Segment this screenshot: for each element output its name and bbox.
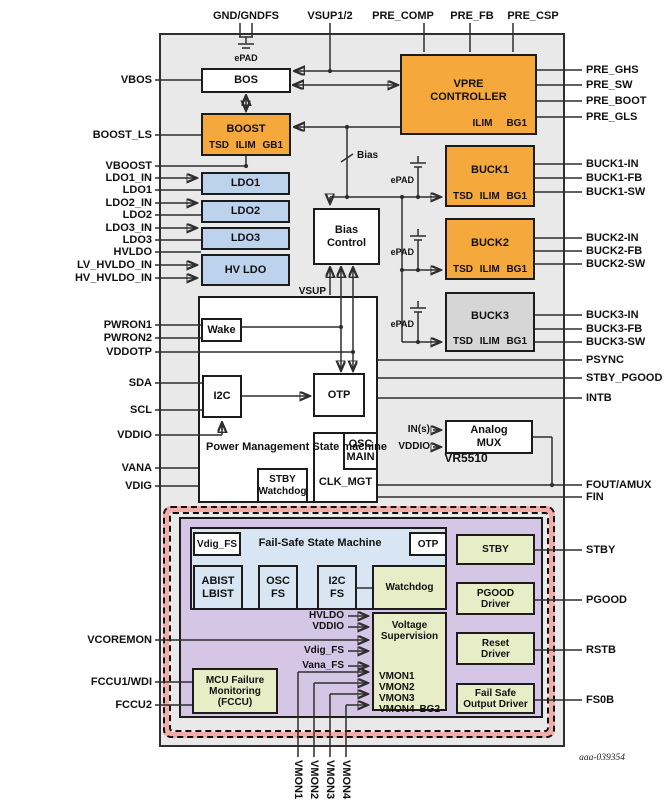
block-hv-ldo: HV LDO: [201, 254, 290, 286]
pin-buck2-sw: BUCK2-SW: [586, 258, 667, 271]
block-osc-fs: OSC FS: [258, 565, 298, 610]
pin-pre-ghs: PRE_GHS: [586, 64, 667, 77]
pin-rstb: RSTB: [586, 644, 667, 657]
block-reset-driver: Reset Driver: [456, 632, 535, 665]
block-bos: BOS: [201, 68, 291, 93]
pin-pre-csp: PRE_CSP: [478, 10, 588, 23]
block-buck1: BUCK1 TSD ILIM BG1: [445, 145, 535, 207]
pin-fccu2: FCCU2: [0, 699, 152, 712]
pin-buck3-sw: BUCK3-SW: [586, 336, 667, 349]
block-stby-watchdog: STBY Watchdog: [257, 468, 308, 503]
block-buck2: BUCK2 TSD ILIM BG1: [445, 218, 535, 280]
block-vdig-fs: Vdig_FS: [193, 532, 241, 556]
vs-vmon3-label: VMON3: [379, 693, 415, 704]
pin-buck3-fb: BUCK3-FB: [586, 323, 667, 336]
pin-scl: SCL: [0, 404, 152, 417]
pin-vdig: VDIG: [0, 480, 152, 493]
block-fail-safe-output-driver: Fail Safe Output Driver: [456, 683, 535, 714]
vs-bg2-label: BG2: [419, 704, 440, 715]
block-abist-lbist: ABIST LBIST: [193, 565, 243, 610]
pm-state-machine-label: Power Management State machine: [206, 441, 341, 454]
pin-buck2-in: BUCK2-IN: [586, 232, 667, 245]
fs-vddio-label: VDDIO: [244, 621, 344, 633]
block-otp: OTP: [313, 373, 365, 417]
pin-buck1-fb: BUCK1-FB: [586, 172, 667, 185]
fs-vana-fs-label: Vana_FS: [244, 660, 344, 672]
pin-vbos: VBOS: [0, 74, 152, 87]
epad1-label: ePAD: [374, 174, 414, 186]
boost-gb1-label: GB1: [262, 140, 283, 152]
vs-vmon2-label: VMON2: [379, 682, 415, 693]
pin-sda: SDA: [0, 377, 152, 390]
bias-net-label: Bias: [357, 150, 378, 162]
pin-fin: FIN: [586, 491, 667, 504]
vs-vmon4-label: VMON4: [379, 704, 415, 715]
pin-intb: INTB: [586, 392, 667, 405]
pin-vmon4: VMON4: [340, 760, 352, 806]
figure-id: aaa-039354: [495, 752, 625, 764]
block-ldo2: LDO2: [201, 200, 290, 223]
pin-vddio: VDDIO: [0, 429, 152, 442]
pin-pgood: PGOOD: [586, 594, 667, 607]
pin-vmon3: VMON3: [324, 760, 336, 806]
pin-vana: VANA: [0, 462, 152, 475]
pin-fs0b: FS0B: [586, 694, 667, 707]
block-ldo3: LDO3: [201, 227, 290, 250]
block-fs-otp: OTP: [409, 532, 447, 556]
block-wake: Wake: [201, 318, 242, 342]
epad2-label: ePAD: [374, 246, 414, 258]
block-i2c: I2C: [202, 375, 242, 418]
block-bias-control: Bias Control: [313, 208, 380, 265]
pin-hvldo: HVLDO: [0, 246, 152, 259]
amux-ins-label: IN(s): [370, 424, 430, 436]
pin-pre-gls: PRE_GLS: [586, 111, 667, 124]
pin-lv-hvldo-in: LV_HVLDO_IN: [0, 259, 152, 272]
block-buck3: BUCK3 TSD ILIM BG1: [445, 292, 535, 352]
vpre-ilim-label: ILIM: [472, 118, 492, 130]
pin-buck1-sw: BUCK1-SW: [586, 186, 667, 199]
pin-fccu1-wdi: FCCU1/WDI: [0, 676, 152, 689]
epad3-label: ePAD: [374, 318, 414, 330]
pin-pwron1: PWRON1: [0, 319, 152, 332]
block-watchdog: Watchdog: [372, 565, 447, 610]
block-boost: BOOST TSD ILIM GB1: [201, 113, 291, 156]
pin-hv-hvldo-in: HV_HVLDO_IN: [0, 272, 152, 285]
block-ldo1: LDO1: [201, 172, 290, 195]
fs-vdig-fs-label: Vdig_FS: [244, 645, 344, 657]
pin-vcoremon: VCOREMON: [0, 634, 152, 647]
vs-vmon1-label: VMON1: [379, 671, 415, 682]
vpre-bg1-label: BG1: [506, 118, 527, 130]
pin-pre-boot: PRE_BOOT: [586, 95, 667, 108]
chip-name-label: VR5510: [428, 452, 504, 464]
boost-ilim-label: ILIM: [236, 140, 256, 152]
pin-stby: STBY: [586, 544, 667, 557]
vsup-net-label: VSUP: [266, 286, 326, 298]
pin-ldo2: LDO2: [0, 209, 152, 222]
failsafe-state-machine-label: Fail-Safe State Machine: [245, 537, 395, 549]
pin-vmon1: VMON1: [292, 760, 304, 806]
pin-ldo1: LDO1: [0, 184, 152, 197]
block-pgood-driver: PGOOD Driver: [456, 582, 535, 615]
pin-vddotp: VDDOTP: [0, 346, 152, 359]
block-mcu-failure-monitoring: MCU Failure Monitoring (FCCU): [192, 668, 278, 714]
pin-boost-ls: BOOST_LS: [0, 129, 152, 142]
block-vpre-controller: VPRE CONTROLLER ILIM BG1: [400, 54, 537, 135]
pin-psync: PSYNC: [586, 354, 667, 367]
pin-stby-pgood: STBY_PGOOD: [586, 372, 667, 385]
pin-vmon2: VMON2: [308, 760, 320, 806]
block-voltage-supervision: Voltage Supervision VMON1 VMON2 VMON3 VM…: [372, 612, 447, 711]
pin-pwron2: PWRON2: [0, 332, 152, 345]
epad-top-label: ePAD: [218, 52, 274, 64]
block-i2c-fs: I2C FS: [317, 565, 357, 610]
block-stby: STBY: [456, 534, 535, 565]
amux-vddio-label: VDDIO: [370, 441, 430, 453]
pin-buck3-in: BUCK3-IN: [586, 309, 667, 322]
block-analog-mux: Analog MUX: [445, 420, 533, 454]
pin-buck2-fb: BUCK2-FB: [586, 245, 667, 258]
vr5510-block-diagram: GND/GNDFS VSUP1/2 PRE_COMP PRE_FB PRE_CS…: [0, 0, 667, 806]
pin-buck1-in: BUCK1-IN: [586, 158, 667, 171]
pin-pre-sw: PRE_SW: [586, 79, 667, 92]
boost-tsd-label: TSD: [209, 140, 229, 152]
